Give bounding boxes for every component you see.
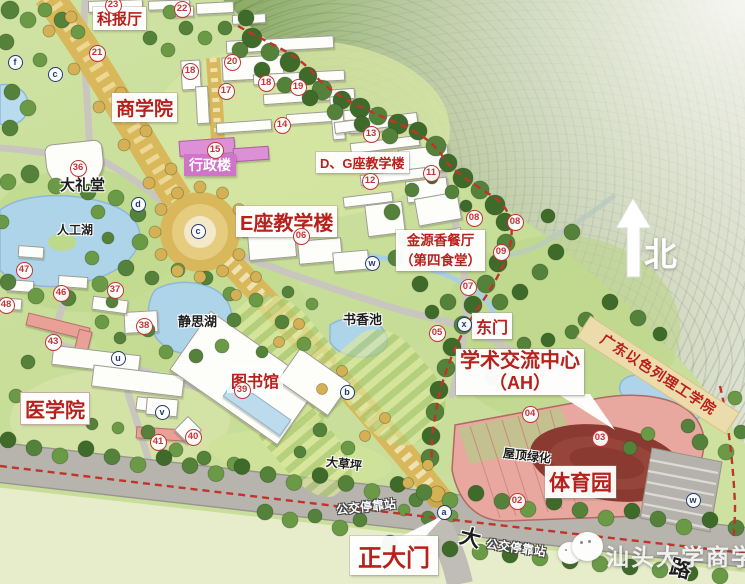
building-marker-06: 06	[293, 228, 310, 245]
building-marker-02: 02	[509, 493, 526, 510]
label-building-e: E座教学楼	[236, 206, 337, 237]
label-sports-park: 体育园	[545, 466, 616, 498]
campus-map: 科报厅 商学院 行政楼 大礼堂 人工湖 E座教学楼 D、G座教学楼 金源香餐厅 …	[0, 0, 745, 584]
label-canteen: 金源香餐厅 （第四食堂）	[396, 230, 485, 271]
building-marker-46: 46	[53, 285, 70, 302]
building-marker-23: 23	[105, 0, 122, 14]
building-marker-09: 09	[493, 244, 510, 261]
label-medical-school: 医学院	[21, 393, 89, 424]
label-business-school: 商学院	[112, 93, 177, 122]
point-marker-d: d	[131, 197, 146, 212]
building-marker-48: 48	[0, 297, 15, 314]
label-jingsi-lake: 静思湖	[178, 311, 217, 330]
building-marker-22: 22	[174, 1, 191, 18]
building-marker-47: 47	[16, 262, 33, 279]
label-east-gate: 东门	[472, 313, 512, 339]
point-marker-c: c	[191, 224, 206, 239]
building-marker-05: 05	[429, 325, 446, 342]
watermark: 汕头大学商学院	[556, 526, 745, 578]
building-marker-13: 13	[363, 126, 380, 143]
point-marker-w: w	[365, 256, 380, 271]
building-marker-21: 21	[89, 45, 106, 62]
building-marker-40: 40	[185, 429, 202, 446]
building-marker-20: 20	[224, 54, 241, 71]
building-marker-15: 15	[207, 142, 224, 159]
building-marker-04: 04	[522, 406, 539, 423]
building-marker-11: 11	[423, 165, 440, 182]
label-main-gate: 正大门	[350, 536, 438, 575]
point-marker-u: u	[111, 351, 126, 366]
label-artificial-lake: 人工湖	[57, 221, 93, 238]
building-marker-07: 07	[460, 279, 477, 296]
building-marker-12: 12	[362, 173, 379, 190]
building-marker-41: 41	[150, 434, 167, 451]
building-marker-18: 18	[182, 63, 199, 80]
building-marker-03: 03	[592, 430, 609, 447]
point-marker-b: b	[340, 385, 355, 400]
point-marker-c: c	[48, 67, 63, 82]
building-marker-38: 38	[136, 318, 153, 335]
building-marker-08: 08	[466, 210, 483, 227]
point-marker-w: w	[686, 493, 701, 508]
building-marker-43: 43	[45, 334, 62, 351]
building-marker-08: 08	[507, 214, 524, 231]
label-building-dg: D、G座教学楼	[316, 152, 409, 173]
building-marker-18: 18	[258, 75, 275, 92]
label-north: 北	[644, 228, 677, 276]
building-marker-17: 17	[218, 83, 235, 100]
watermark-text: 汕头大学商学院	[606, 538, 745, 572]
building-marker-36: 36	[70, 160, 87, 177]
building-marker-39: 39	[234, 382, 251, 399]
building-marker-19: 19	[290, 79, 307, 96]
building-marker-37: 37	[107, 282, 124, 299]
point-marker-v: v	[155, 405, 170, 420]
point-marker-a: a	[437, 505, 452, 520]
label-academic-center: 学术交流中心 （AH）	[456, 349, 584, 395]
academic-center-callout	[558, 394, 615, 430]
building-marker-14: 14	[274, 117, 291, 134]
label-shuxiang-pond: 书香池	[343, 309, 382, 328]
label-auditorium: 大礼堂	[60, 174, 105, 195]
point-marker-x: x	[457, 317, 472, 332]
point-marker-f: f	[8, 55, 23, 70]
